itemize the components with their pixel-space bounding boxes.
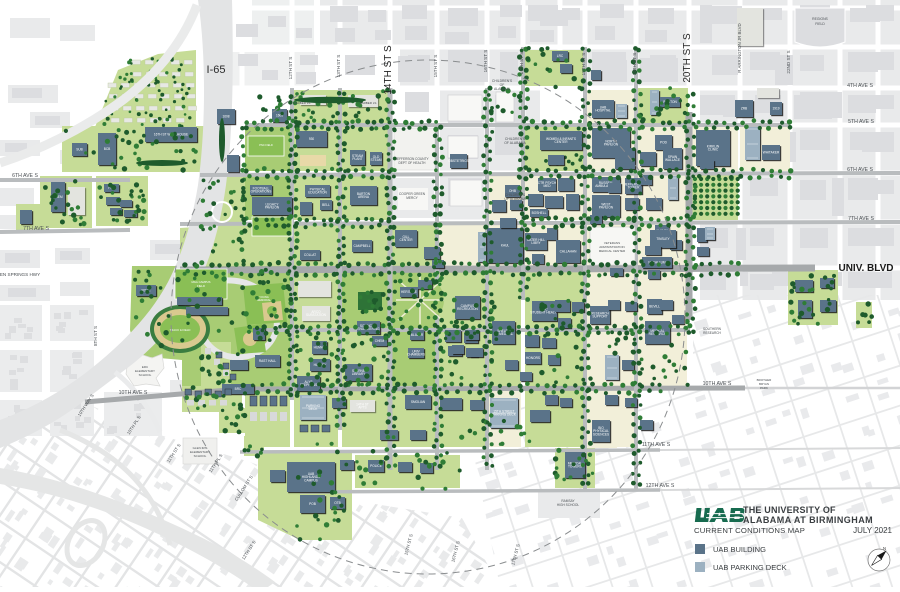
svg-text:SMOLIAN: SMOLIAN — [411, 400, 426, 404]
svg-text:BOSHELL: BOSHELL — [532, 211, 547, 215]
svg-text:LRC: LRC — [557, 54, 564, 58]
svg-text:RAST HALL: RAST HALL — [259, 359, 277, 363]
svg-text:MEMORIAL: MEMORIAL — [257, 298, 271, 302]
svg-text:PAVILION: PAVILION — [265, 206, 280, 210]
svg-text:CENTER: CENTER — [554, 140, 568, 144]
svg-text:HIGH SCHOOL: HIGH SCHOOL — [557, 503, 580, 507]
svg-text:1919: 1919 — [772, 107, 779, 111]
svg-text:LIBRY: LIBRY — [531, 241, 541, 245]
svg-text:SCIENCES: SCIENCES — [593, 432, 609, 436]
svg-text:PNC FIELD: PNC FIELD — [259, 143, 273, 147]
svg-text:BELL: BELL — [322, 203, 330, 207]
svg-text:FIELD: FIELD — [815, 22, 825, 26]
svg-text:PLANT: PLANT — [352, 157, 362, 161]
svg-text:HOSPITAL: HOSPITAL — [595, 109, 611, 113]
svg-text:APTS: APTS — [358, 406, 366, 410]
svg-text:OPERATIONS: OPERATIONS — [251, 190, 272, 194]
svg-text:SUBSTATION: SUBSTATION — [306, 313, 327, 317]
svg-text:SCHOOL: SCHOOL — [139, 373, 152, 377]
svg-text:TRACK & FIELD: TRACK & FIELD — [170, 328, 191, 332]
svg-text:POB: POB — [309, 502, 316, 506]
svg-text:BCB: BCB — [104, 147, 111, 151]
svg-text:STUDENT HEALTH: STUDENT HEALTH — [530, 311, 559, 315]
svg-text:RECREATION: RECREATION — [457, 307, 478, 311]
svg-text:CENTER: CENTER — [399, 238, 413, 242]
svg-text:CAMPUS: CAMPUS — [304, 478, 318, 482]
svg-text:BEVILL: BEVILL — [649, 305, 660, 309]
svg-text:HONORS: HONORS — [526, 356, 540, 360]
svg-text:PAVILION: PAVILION — [599, 206, 614, 210]
svg-text:WHITAKER: WHITAKER — [763, 151, 780, 155]
svg-text:CLINIC: CLINIC — [708, 148, 719, 152]
svg-text:EDUCATION: EDUCATION — [308, 191, 327, 195]
svg-text:930: 930 — [309, 137, 315, 141]
svg-text:DECK: DECK — [309, 407, 319, 411]
svg-text:MED: MED — [543, 184, 551, 188]
svg-text:COLLAT: COLLAT — [304, 253, 316, 257]
svg-text:FIELD: FIELD — [197, 284, 205, 288]
svg-text:MEDICAL CENTER: MEDICAL CENTER — [599, 249, 626, 253]
svg-text:SCHOOL: SCHOOL — [194, 454, 207, 458]
svg-text:SUB: SUB — [76, 148, 83, 152]
svg-text:OBSTETRICS: OBSTETRICS — [448, 159, 468, 163]
svg-text:TINSLEY: TINSLEY — [656, 237, 670, 241]
svg-text:PAVILION: PAVILION — [604, 143, 619, 147]
svg-text:CHEM: CHEM — [375, 339, 385, 343]
svg-text:1608: 1608 — [222, 115, 229, 119]
svg-text:ARENA: ARENA — [358, 195, 370, 199]
svg-text:BRC: BRC — [235, 387, 242, 391]
svg-text:KAUL: KAUL — [501, 244, 510, 248]
svg-text:REGIONS: REGIONS — [812, 17, 828, 21]
svg-text:LIBRARY: LIBRARY — [352, 372, 366, 376]
svg-text:CAMPBELL: CAMPBELL — [353, 244, 370, 248]
svg-text:CALLAHAN: CALLAHAN — [560, 250, 578, 254]
svg-text:SUPPORT: SUPPORT — [592, 315, 607, 319]
svg-text:WALLACE: WALLACE — [665, 158, 680, 162]
svg-text:PARKING DECK: PARKING DECK — [492, 413, 517, 417]
svg-text:ZRB: ZRB — [741, 107, 747, 111]
svg-text:POD: POD — [660, 141, 668, 145]
svg-text:STEAM: STEAM — [371, 158, 382, 162]
svg-text:CHAMBERS: CHAMBERS — [407, 353, 425, 357]
